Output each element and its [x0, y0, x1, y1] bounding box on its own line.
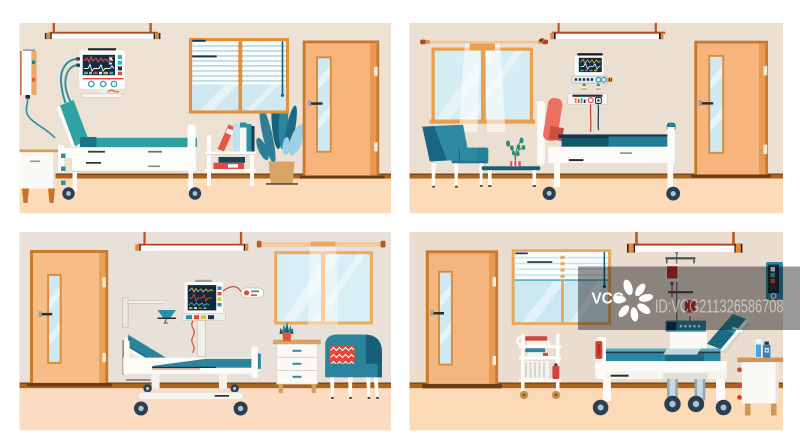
svg-text:ID:VCG211326586708: ID:VCG211326586708 [655, 296, 784, 317]
